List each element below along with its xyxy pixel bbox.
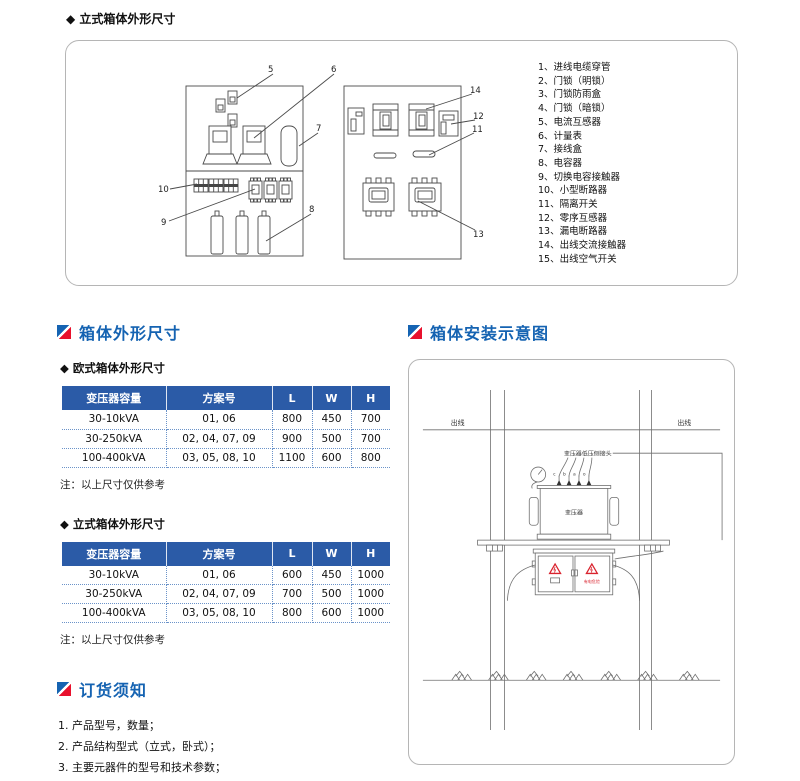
legend-item: 10、小型断路器 — [538, 184, 726, 198]
dimensions-column: 箱体外形尺寸 ◆ 欧式箱体外形尺寸 变压器容量 方案号 L W H 30-10k… — [57, 320, 402, 781]
order-item: 1. 产品型号，数量； — [58, 715, 402, 736]
transformer: 变压器 — [529, 485, 618, 539]
col-scheme: 方案号 — [166, 542, 272, 566]
vertical-subheading: ◆ 立式箱体外形尺寸 — [60, 516, 402, 532]
dims-section-title: 箱体外形尺寸 — [79, 320, 181, 344]
left-cabinet: 5 6 7 10 9 8 — [158, 65, 336, 256]
vertical-dimensions-table: 变压器容量 方案号 L W H 30-10kVA01, 066004501000… — [62, 542, 390, 624]
legend-item: 1、进线电缆穿管 — [538, 61, 726, 75]
col-scheme: 方案号 — [166, 386, 272, 410]
svg-text:8: 8 — [309, 205, 314, 215]
order-section-heading: 订货须知 — [57, 677, 402, 701]
section-marker-icon — [408, 325, 422, 339]
svg-text:5: 5 — [268, 65, 273, 75]
component-legend: 1、进线电缆穿管 2、门锁（明锁） 3、门锁防雨盒 4、门锁（暗锁） 5、电流互… — [538, 41, 736, 285]
lv-wire — [613, 453, 722, 540]
cable-left — [507, 565, 535, 601]
svg-text:7: 7 — [316, 124, 321, 134]
legend-item: 14、出线交流接触器 — [538, 239, 726, 253]
col-capacity: 变压器容量 — [62, 386, 166, 410]
section-marker-icon — [57, 682, 71, 696]
table-note: 注：以上尺寸仅供参考 — [60, 477, 402, 492]
installation-panel: 出线 出线 变压器低压侧接头 c b a o — [408, 359, 735, 765]
legend-item: 6、计量表 — [538, 130, 726, 144]
distribution-box: 有电危险 — [532, 549, 615, 595]
pole-right — [640, 390, 652, 730]
legend-item: 15、出线空气开关 — [538, 253, 726, 267]
installation-column: 箱体安装示意图 出线 出线 — [408, 320, 738, 765]
dims-section-heading: 箱体外形尺寸 — [57, 320, 402, 344]
outgoing-label-right: 出线 — [677, 418, 691, 427]
svg-text:c: c — [553, 473, 556, 478]
vertical-cabinet-panel: 5 6 7 10 9 8 — [65, 40, 738, 286]
install-section-heading: 箱体安装示意图 — [408, 320, 738, 344]
table-row: 30-10kVA01, 066004501000 — [62, 566, 390, 585]
svg-text:10: 10 — [158, 185, 169, 195]
svg-text:b: b — [563, 472, 566, 478]
legend-item: 11、隔离开关 — [538, 198, 726, 212]
col-l: L — [272, 542, 312, 566]
cable-right — [613, 565, 640, 601]
svg-text:o: o — [583, 473, 586, 478]
col-h: H — [351, 542, 390, 566]
cable-beam — [615, 551, 664, 559]
legend-item: 5、电流互感器 — [538, 116, 726, 130]
col-capacity: 变压器容量 — [62, 542, 166, 566]
catalog-page: ◆ 立式箱体外形尺寸 — [0, 0, 800, 781]
svg-text:a: a — [573, 473, 576, 478]
svg-text:12: 12 — [473, 112, 484, 122]
legend-item: 7、接线盒 — [538, 143, 726, 157]
vertical-dims-title: ◆ 立式箱体外形尺寸 — [66, 10, 175, 27]
installation-diagram: 出线 出线 变压器低压侧接头 c b a o — [409, 360, 734, 764]
eu-dimensions-table: 变压器容量 方案号 L W H 30-10kVA01, 06800450700 … — [62, 386, 390, 468]
table-row: 30-250kVA02, 04, 07, 09900500700 — [62, 429, 390, 448]
eu-subheading: ◆ 欧式箱体外形尺寸 — [60, 360, 402, 376]
install-section-title: 箱体安装示意图 — [430, 320, 549, 344]
section-marker-icon — [57, 325, 71, 339]
svg-text:9: 9 — [161, 218, 166, 228]
svg-text:11: 11 — [472, 125, 483, 135]
table-row: 30-250kVA02, 04, 07, 097005001000 — [62, 585, 390, 604]
right-cabinet: 14 12 11 13 — [344, 86, 484, 259]
table-note: 注：以上尺寸仅供参考 — [60, 632, 402, 647]
legend-item: 9、切换电容接触器 — [538, 171, 726, 185]
cabinet-layout-diagram: 5 6 7 10 9 8 — [66, 41, 538, 285]
order-section-title: 订货须知 — [79, 677, 147, 701]
table-row: 100-400kVA03, 05, 08, 108006001000 — [62, 604, 390, 623]
lv-terminal-label: 变压器低压侧接头 — [564, 450, 612, 458]
legend-item: 4、门锁（暗锁） — [538, 102, 726, 116]
transformer-label: 变压器 — [565, 508, 583, 516]
order-item: 3. 主要元器件的型号和技术参数； — [58, 757, 402, 778]
col-h: H — [351, 386, 390, 410]
legend-item: 12、零序互感器 — [538, 212, 726, 226]
pole-left — [490, 390, 504, 730]
svg-text:14: 14 — [470, 86, 481, 96]
svg-text:13: 13 — [473, 230, 484, 240]
table-row: 30-10kVA01, 06800450700 — [62, 410, 390, 429]
outgoing-label-left: 出线 — [451, 418, 465, 427]
danger-label: 有电危险 — [584, 579, 600, 584]
col-w: W — [312, 386, 351, 410]
table-header-row: 变压器容量 方案号 L W H — [62, 386, 390, 410]
svg-text:6: 6 — [331, 65, 336, 75]
table-header-row: 变压器容量 方案号 L W H — [62, 542, 390, 566]
col-l: L — [272, 386, 312, 410]
legend-item: 8、电容器 — [538, 157, 726, 171]
legend-item: 3、门锁防雨盒 — [538, 88, 726, 102]
order-item: 2. 产品结构型式（立式，卧式）； — [58, 736, 402, 757]
table-row: 100-400kVA03, 05, 08, 101100600800 — [62, 448, 390, 467]
capacitors — [211, 211, 270, 254]
bushings: c b a o — [553, 472, 592, 488]
order-notes-list: 1. 产品型号，数量； 2. 产品结构型式（立式，卧式）； 3. 主要元器件的型… — [58, 715, 402, 781]
legend-item: 2、门锁（明锁） — [538, 75, 726, 89]
capacitor-contactors — [249, 178, 292, 202]
mini-breakers — [194, 179, 238, 192]
col-w: W — [312, 542, 351, 566]
legend-item: 13、漏电断路器 — [538, 225, 726, 239]
